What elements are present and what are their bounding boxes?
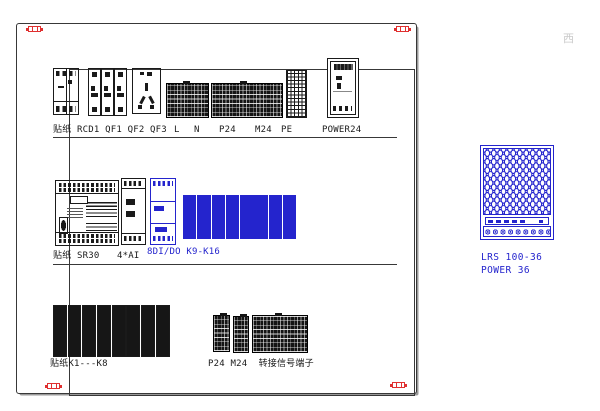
relay-k1	[53, 305, 67, 357]
relay-k6	[126, 305, 140, 357]
row-divider-1	[53, 137, 397, 138]
rcd1-breaker	[53, 68, 79, 115]
panel-layout-drawing: 贴纸 RCD1 QF1 QF2 QF3 L N P24 M24 PE POWER…	[0, 0, 600, 411]
terminal-block-m24-bottom	[233, 316, 249, 353]
socket-slot-right	[148, 96, 154, 104]
relay-k14	[254, 195, 267, 239]
psu-terminal-row	[483, 226, 551, 237]
relay-k11	[212, 195, 225, 239]
terminal-block-p24-bottom	[213, 315, 230, 352]
relay-k8	[156, 305, 170, 357]
row-divider-2	[53, 264, 397, 265]
row2-left-label: 贴纸 SR30	[53, 251, 100, 262]
terminal-block-l-n	[166, 83, 209, 118]
terminal-block-p24-m24	[211, 83, 283, 118]
row3-right-label: P24 M24 转接信号端子	[208, 359, 314, 370]
relay-k16	[283, 195, 296, 239]
terminal-label-l: L	[174, 125, 180, 136]
analog-input-module	[121, 178, 146, 245]
psu-model-strip	[485, 217, 549, 225]
psu-model-label: LRS 100-36	[481, 252, 542, 263]
sr30-plc-module	[55, 180, 119, 246]
terminal-block-pe	[286, 70, 307, 118]
relay-k15	[269, 195, 282, 239]
row3-left-label: 贴纸K1---K8	[50, 359, 108, 370]
relay-k4	[97, 305, 111, 357]
terminal-label-p24: P24	[219, 125, 236, 136]
terminal-label-pe: PE	[281, 125, 292, 136]
plc-display	[70, 196, 88, 204]
lrs-power-supply-module	[480, 145, 554, 240]
power24-face	[330, 61, 356, 115]
row2-dio-label: 8DI/DO K9-K16	[147, 247, 220, 258]
relay-k5	[112, 305, 126, 357]
plc-logo-text	[67, 208, 83, 218]
row2-ai-label: 4*AI	[117, 251, 139, 262]
relay-k3	[82, 305, 96, 357]
qf2-breaker	[101, 68, 114, 116]
qf1-breaker	[88, 68, 101, 116]
relay-k12	[226, 195, 239, 239]
terminal-label-n: N	[194, 125, 200, 136]
relay-k7	[141, 305, 155, 357]
mount-screw-bottom-right-icon	[392, 382, 405, 388]
relay-k13	[240, 195, 253, 239]
din-rail-socket	[132, 68, 161, 114]
psu-honeycomb-vent	[483, 148, 551, 215]
relay-group-k1-k8	[53, 305, 171, 357]
row1-left-labels: 贴纸 RCD1 QF1 QF2 QF3	[53, 125, 167, 136]
relay-k2	[68, 305, 82, 357]
plc-connector	[59, 217, 68, 234]
mount-screw-top-left-icon	[28, 26, 41, 32]
watermark-character: 西	[563, 30, 574, 46]
terminal-label-m24: M24	[255, 125, 272, 136]
mount-screw-bottom-left-icon	[47, 383, 60, 389]
mount-screw-top-right-icon	[396, 26, 409, 32]
qf3-breaker	[114, 68, 127, 116]
psu-rating-label: POWER 36	[481, 265, 530, 276]
relay-k9	[183, 195, 196, 239]
relay-k10	[197, 195, 210, 239]
power24-supply-module	[327, 58, 359, 118]
socket-slot-left	[139, 96, 145, 104]
power24-label: POWER24	[322, 125, 361, 136]
signal-transfer-terminal-strip	[252, 315, 308, 353]
relay-group-k9-k16	[183, 195, 297, 239]
digital-io-module	[150, 178, 176, 245]
